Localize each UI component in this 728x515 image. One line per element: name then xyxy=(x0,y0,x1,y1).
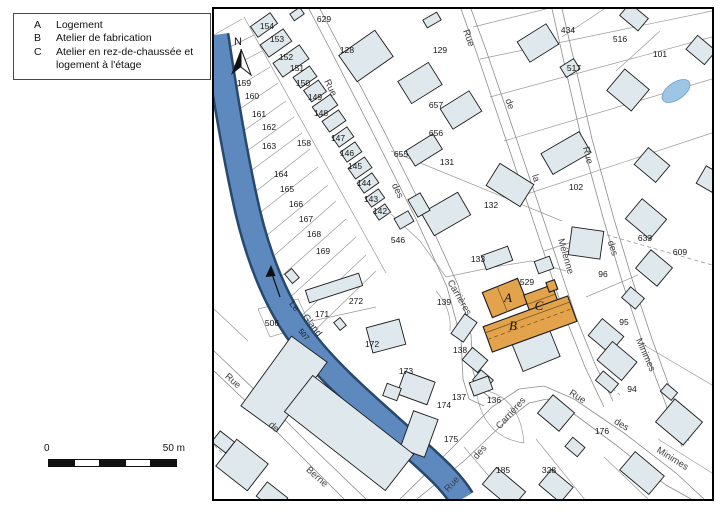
scale-bar-graphic xyxy=(48,459,177,467)
parcel-151: 151 xyxy=(290,63,304,73)
label-building-b: B xyxy=(509,318,517,333)
map-canvas: A B C N 154 629 128 129 434 516 101 517 … xyxy=(214,9,712,499)
legend-label-b: Atelier de fabrication xyxy=(56,32,204,45)
legend-row-a: A Logement xyxy=(14,19,204,32)
parcel-657: 657 xyxy=(429,100,443,110)
north-arrow: N xyxy=(231,36,251,75)
scale-bar: 0 50 m xyxy=(40,443,185,473)
parcel-176: 176 xyxy=(595,426,609,436)
parcel-328: 328 xyxy=(542,465,556,475)
building xyxy=(421,192,470,236)
pond xyxy=(658,75,694,107)
parcel-506: 506 xyxy=(265,318,279,328)
parcel-148: 148 xyxy=(314,108,328,118)
scale-segment xyxy=(49,460,74,466)
buildings-layer xyxy=(214,9,712,499)
parcel-172: 172 xyxy=(365,339,379,349)
building xyxy=(481,246,512,270)
building xyxy=(256,482,288,499)
parcel-150: 150 xyxy=(296,78,310,88)
parcel-160: 160 xyxy=(245,91,259,101)
legend-key-c: C xyxy=(34,46,56,73)
building xyxy=(469,376,493,396)
parcel-629: 629 xyxy=(317,14,331,24)
parcel-175: 175 xyxy=(444,434,458,444)
parcel-129: 129 xyxy=(433,45,447,55)
parcel-656: 656 xyxy=(429,128,443,138)
parcel-139: 139 xyxy=(437,297,451,307)
parcel-161: 161 xyxy=(252,109,266,119)
parcel-131: 131 xyxy=(440,157,454,167)
legend-key-b: B xyxy=(34,32,56,45)
parcel-149: 149 xyxy=(308,92,322,102)
scale-max-label: 50 m xyxy=(163,443,185,454)
parcel-169: 169 xyxy=(316,246,330,256)
street-label-berne-rue: Rue xyxy=(223,371,243,391)
building xyxy=(339,30,393,81)
street-label-melenne-de: de xyxy=(502,97,516,111)
building xyxy=(406,134,443,166)
parcel-95: 95 xyxy=(619,317,629,327)
street-carrieres-top-east-edge xyxy=(320,9,492,399)
building xyxy=(394,211,414,229)
parcel-529: 529 xyxy=(520,277,534,287)
north-label: N xyxy=(234,36,242,48)
street-label-berne-name: Berne xyxy=(304,465,330,490)
parcel-655: 655 xyxy=(394,149,408,159)
street-label-minimes-bottom-rue: Rue xyxy=(567,388,588,407)
parcel-633: 633 xyxy=(638,233,652,243)
building xyxy=(696,166,712,192)
building xyxy=(440,91,482,129)
building xyxy=(568,227,604,259)
parcel-272: 272 xyxy=(349,296,363,306)
building xyxy=(290,9,304,21)
building xyxy=(565,437,585,456)
parcel-94: 94 xyxy=(627,384,637,394)
scale-segment xyxy=(74,460,100,466)
parcel-609: 609 xyxy=(673,247,687,257)
building xyxy=(451,314,477,342)
parcel-137: 137 xyxy=(452,392,466,402)
building xyxy=(636,250,673,286)
parcel-102: 102 xyxy=(569,182,583,192)
parcel-138: 138 xyxy=(453,345,467,355)
building xyxy=(397,371,435,404)
street-label-minimes-bottom-des: des xyxy=(612,416,631,434)
building xyxy=(634,148,670,183)
parcel-133: 133 xyxy=(471,254,485,264)
parcel-128: 128 xyxy=(340,45,354,55)
parcel-147: 147 xyxy=(331,133,345,143)
parcel-434: 434 xyxy=(561,25,575,35)
map-frame: A B C N 154 629 128 129 434 516 101 517 … xyxy=(212,7,714,501)
parcel-516: 516 xyxy=(613,34,627,44)
north-arrow-right xyxy=(241,49,251,75)
parcel-168: 168 xyxy=(307,229,321,239)
parcel-173: 173 xyxy=(399,366,413,376)
street-label-carrieres-top-des: des xyxy=(389,182,406,201)
street-label-minimes-name: Minimes xyxy=(633,337,658,374)
parcel-152: 152 xyxy=(279,52,293,62)
parcel-132: 132 xyxy=(484,200,498,210)
parcel-158: 158 xyxy=(297,138,311,148)
parcel-144: 144 xyxy=(357,178,371,188)
street-label-melenne-rue: Rue xyxy=(460,28,476,48)
parcel-154: 154 xyxy=(260,21,274,31)
parcel-162: 162 xyxy=(262,122,276,132)
scale-zero-label: 0 xyxy=(44,443,50,454)
legend-row-c: C Atelier en rez-de-chaussée et logement… xyxy=(14,46,204,73)
building xyxy=(383,383,402,400)
parcel-185: 185 xyxy=(496,465,510,475)
parcel-174: 174 xyxy=(437,400,451,410)
building xyxy=(686,35,712,64)
parcel-145: 145 xyxy=(348,161,362,171)
label-building-c: C xyxy=(535,298,544,313)
parcel-517: 517 xyxy=(567,63,581,73)
legend-row-b: B Atelier de fabrication xyxy=(14,32,204,45)
building xyxy=(656,399,703,445)
building xyxy=(534,256,553,274)
parcel-146: 146 xyxy=(340,148,354,158)
legend-label-c: Atelier en rez-de-chaussée et logement à… xyxy=(56,46,204,73)
parcel-136: 136 xyxy=(487,395,501,405)
building xyxy=(334,318,347,331)
street-label-minimes-bottom-name: Minimes xyxy=(654,445,690,473)
parcel-171: 171 xyxy=(315,309,329,319)
building xyxy=(607,69,650,111)
parcel-164: 164 xyxy=(274,169,288,179)
scale-segment xyxy=(150,460,176,466)
building xyxy=(517,24,559,62)
scale-segment xyxy=(125,460,151,466)
parcel-163: 163 xyxy=(262,141,276,151)
legend-label-a: Logement xyxy=(56,19,204,32)
building xyxy=(398,62,442,103)
building xyxy=(620,9,649,31)
parcel-96: 96 xyxy=(598,269,608,279)
parcel-546: 546 xyxy=(391,235,405,245)
parcel-142: 142 xyxy=(373,206,387,216)
parcel-143: 143 xyxy=(364,194,378,204)
building xyxy=(620,452,665,495)
parcel-167: 167 xyxy=(299,214,313,224)
parcel-166: 166 xyxy=(289,199,303,209)
legend-box: A Logement B Atelier de fabrication C At… xyxy=(13,13,211,80)
legend-key-a: A xyxy=(34,19,56,32)
scale-segment xyxy=(99,460,125,466)
building xyxy=(423,12,441,28)
parcel-153: 153 xyxy=(270,34,284,44)
parcel-101: 101 xyxy=(653,49,667,59)
parcel-159: 159 xyxy=(237,78,251,88)
street-label-minimes-rue: Rue xyxy=(580,146,595,166)
street-label-minimes-des: des xyxy=(605,239,620,257)
parcel-165: 165 xyxy=(280,184,294,194)
label-building-a: A xyxy=(503,290,512,305)
building xyxy=(285,269,300,284)
